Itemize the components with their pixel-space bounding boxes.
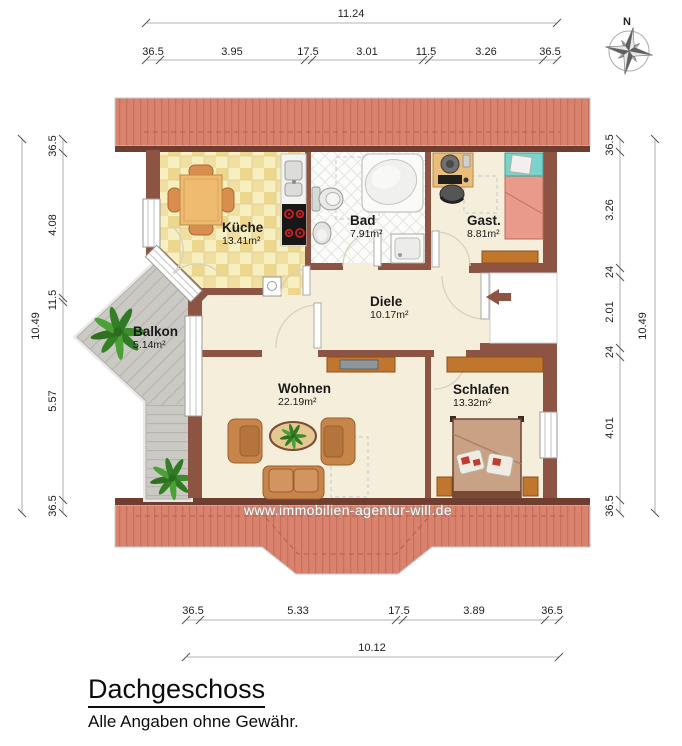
tv-lowboard [327,357,395,372]
dim-top-seg: 3.01 [356,46,377,58]
dim-right-seg: 24 [604,346,616,358]
dim-left-seg: 4.08 [47,214,59,235]
living-door-leaf [314,303,321,348]
dim-left-seg: 11.5 [47,290,59,311]
toilet [312,187,343,211]
compass-rose-icon [601,23,657,79]
dim-left-seg: 36.5 [47,495,59,516]
room-name: Wohnen [278,382,331,396]
bedroom-wardrobe [447,357,543,372]
nightstand-left [437,477,452,496]
dim-left-overall: 10.49 [30,312,42,340]
dim-right-seg: 2.01 [604,301,616,322]
dim-top-seg: 36.5 [142,46,163,58]
armchair-left [228,419,262,463]
guest-desk [433,153,473,187]
room-area: 22.19m² [278,397,331,408]
bidet [313,222,331,244]
dim-top-overall: 11.24 [338,8,365,20]
dim-right-overall: 10.49 [637,312,649,340]
bedroom-window [540,412,557,458]
dim-bottom-seg: 5.33 [287,605,308,617]
kitchen-door-leaf [303,266,310,295]
kitchen-counter [281,154,306,246]
dim-bottom-overall: 10.12 [358,642,386,654]
double-bed [450,416,524,498]
dim-right-seg: 4.01 [604,417,616,438]
room-name: Schlafen [453,383,509,397]
room-name: Diele [370,295,409,309]
room-label-kueche: Küche 13.41m² [222,221,263,247]
disclaimer-text: Alle Angaben ohne Gewähr. [88,712,299,732]
dim-top-seg: 3.26 [475,46,496,58]
room-name: Küche [222,221,263,235]
dim-right-seg: 3.26 [604,199,616,220]
room-name: Gast. [467,214,501,228]
dim-bottom-seg: 36.5 [541,605,562,617]
stove-icon [282,204,306,245]
entrance-niche [490,273,557,343]
room-name: Bad [350,214,383,228]
guest-sideboard [482,251,538,263]
page-title: Dachgeschoss [88,674,265,708]
dim-right-seg: 36.5 [604,495,616,516]
dim-top-seg: 17.5 [297,46,318,58]
chimney-block [263,277,281,296]
living-room-window [185,316,202,416]
room-label-schlafen: Schlafen 13.32m² [453,383,509,409]
roof-overhang-top [115,98,590,152]
armchair-right [321,418,355,465]
floorplan-page: N Küche 13.41m² Bad 7.91m² Gast. 8.81m² … [0,0,682,746]
room-label-wohnen: Wohnen 22.19m² [278,382,331,408]
room-area: 5.14m² [133,340,178,351]
room-label-bad: Bad 7.91m² [350,214,383,240]
room-label-balkon: Balkon 5.14m² [133,325,178,351]
kitchen-window [143,199,160,247]
dim-top-seg: 11.5 [416,46,437,58]
room-area: 7.91m² [350,229,383,240]
nightstand-right [523,477,538,496]
balcony-deck [77,262,194,501]
room-label-diele: Diele 10.17m² [370,295,409,321]
room-area: 13.32m² [453,398,509,409]
dim-top-seg: 36.5 [539,46,560,58]
coffee-table [270,422,316,450]
dim-top-seg: 3.95 [221,46,242,58]
room-area: 10.17m² [370,310,409,321]
dim-bottom-seg: 17.5 [388,605,409,617]
dim-right-seg: 24 [604,266,616,278]
compass-north-label: N [623,16,631,28]
room-area: 8.81m² [467,229,501,240]
title-block: Dachgeschoss Alle Angaben ohne Gewähr. [88,674,299,732]
dim-left-seg: 5.57 [47,390,59,411]
shower [391,234,424,263]
dim-bottom-seg: 3.89 [463,605,484,617]
floorplan-canvas [0,0,682,746]
desk-chair [440,185,464,203]
sofa [263,466,324,499]
bathtub [359,153,423,212]
dim-bottom-seg: 36.5 [182,605,203,617]
room-area: 13.41m² [222,236,263,247]
room-name: Balkon [133,325,178,339]
guest-door-leaf [432,231,439,267]
room-label-gast: Gast. 8.81m² [467,214,501,240]
watermark: www.immobilien-agentur-will.de [244,502,452,518]
dim-right-seg: 36.5 [604,134,616,155]
dim-left-seg: 36.5 [47,135,59,156]
guest-bed [505,153,543,239]
